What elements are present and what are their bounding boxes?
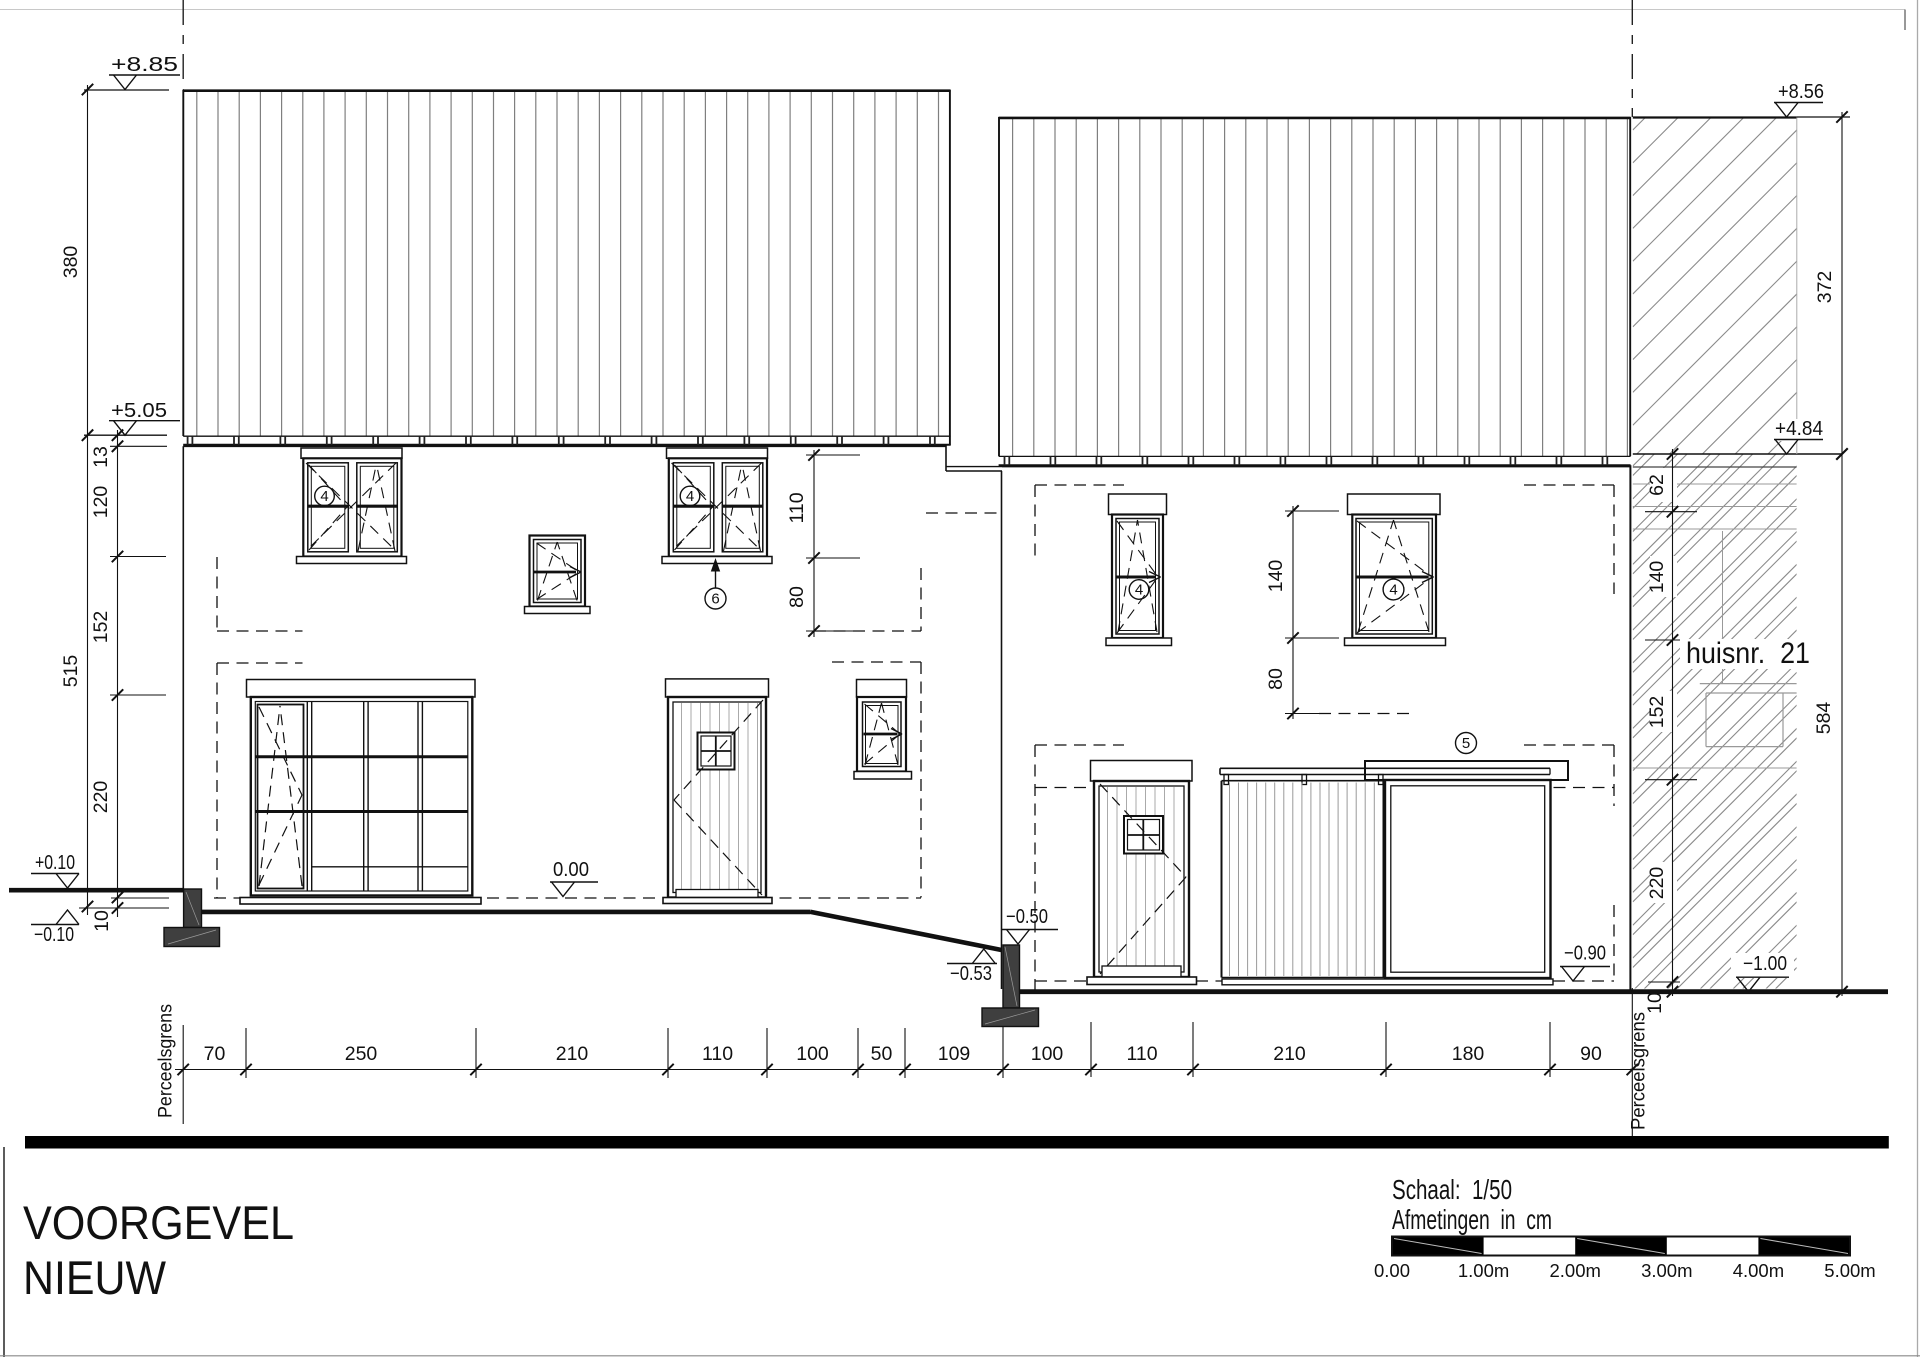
svg-text:+8.56: +8.56 bbox=[1778, 81, 1824, 103]
svg-text:210: 210 bbox=[556, 1043, 589, 1065]
svg-text:110: 110 bbox=[786, 492, 808, 523]
svg-text:Schaal: 1/50: Schaal: 1/50 bbox=[1392, 1174, 1512, 1205]
svg-text:220: 220 bbox=[1646, 867, 1668, 900]
svg-text:−1.00: −1.00 bbox=[1743, 953, 1787, 975]
svg-text:+0.10: +0.10 bbox=[35, 852, 75, 874]
svg-text:140: 140 bbox=[1646, 561, 1668, 594]
svg-text:140: 140 bbox=[1265, 560, 1287, 593]
svg-text:+8.85: +8.85 bbox=[111, 54, 178, 76]
svg-text:4: 4 bbox=[1135, 582, 1143, 599]
svg-text:−0.10: −0.10 bbox=[34, 924, 74, 946]
svg-text:6: 6 bbox=[711, 591, 719, 608]
svg-text:NIEUW: NIEUW bbox=[23, 1252, 166, 1305]
svg-text:+4.84: +4.84 bbox=[1775, 418, 1823, 440]
svg-text:380: 380 bbox=[60, 246, 82, 279]
svg-text:10: 10 bbox=[91, 910, 113, 932]
svg-text:5: 5 bbox=[1462, 735, 1470, 752]
svg-text:210: 210 bbox=[1273, 1043, 1306, 1065]
svg-text:4: 4 bbox=[1389, 582, 1397, 599]
svg-text:0.00: 0.00 bbox=[553, 859, 589, 881]
svg-text:−0.50: −0.50 bbox=[1006, 906, 1048, 928]
svg-text:90: 90 bbox=[1580, 1043, 1602, 1065]
svg-text:5.00m: 5.00m bbox=[1824, 1260, 1875, 1281]
svg-text:220: 220 bbox=[90, 781, 112, 814]
svg-text:1.00m: 1.00m bbox=[1458, 1260, 1509, 1281]
svg-text:huisnr. 21: huisnr. 21 bbox=[1686, 637, 1810, 670]
svg-text:100: 100 bbox=[796, 1043, 829, 1065]
svg-text:515: 515 bbox=[60, 655, 82, 688]
svg-text:152: 152 bbox=[90, 611, 112, 644]
svg-text:120: 120 bbox=[90, 486, 112, 519]
svg-text:Perceelsgrens: Perceelsgrens bbox=[1629, 1012, 1650, 1130]
svg-text:4.00m: 4.00m bbox=[1733, 1260, 1784, 1281]
svg-text:110: 110 bbox=[702, 1043, 733, 1065]
svg-text:4: 4 bbox=[686, 488, 694, 505]
svg-text:110: 110 bbox=[1126, 1043, 1157, 1065]
svg-text:70: 70 bbox=[204, 1043, 226, 1065]
svg-text:0.00: 0.00 bbox=[1374, 1260, 1410, 1281]
svg-text:3.00m: 3.00m bbox=[1641, 1260, 1692, 1281]
svg-text:Afmetingen in cm: Afmetingen in cm bbox=[1392, 1204, 1552, 1235]
svg-text:250: 250 bbox=[345, 1043, 378, 1065]
svg-text:109: 109 bbox=[938, 1043, 971, 1065]
svg-text:VOORGEVEL: VOORGEVEL bbox=[23, 1197, 294, 1250]
svg-text:100: 100 bbox=[1031, 1043, 1064, 1065]
svg-text:80: 80 bbox=[786, 586, 808, 608]
svg-text:4: 4 bbox=[320, 488, 328, 505]
svg-text:+5.05: +5.05 bbox=[111, 400, 167, 422]
svg-text:−0.90: −0.90 bbox=[1564, 943, 1606, 965]
svg-text:80: 80 bbox=[1265, 668, 1287, 690]
svg-text:13: 13 bbox=[90, 446, 112, 468]
svg-text:−0.53: −0.53 bbox=[950, 963, 992, 985]
svg-text:152: 152 bbox=[1646, 696, 1668, 729]
svg-text:180: 180 bbox=[1452, 1043, 1485, 1065]
svg-text:584: 584 bbox=[1813, 702, 1835, 735]
svg-text:2.00m: 2.00m bbox=[1549, 1260, 1600, 1281]
svg-text:10: 10 bbox=[1644, 992, 1666, 1014]
svg-text:62: 62 bbox=[1646, 474, 1668, 496]
svg-text:50: 50 bbox=[871, 1043, 893, 1065]
svg-text:Perceelsgrens: Perceelsgrens bbox=[156, 1004, 177, 1118]
svg-text:372: 372 bbox=[1814, 271, 1836, 304]
